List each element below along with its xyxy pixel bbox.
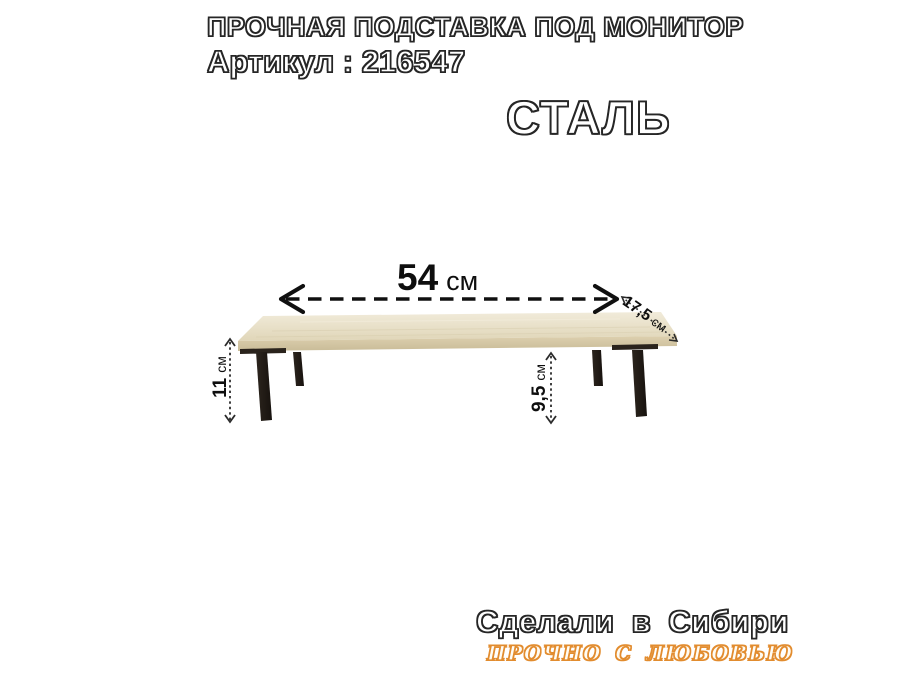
width-unit: см [446,266,478,297]
width-dimension-label: 54 см [397,257,478,299]
height-left-value: 11 [210,378,232,398]
stand-leg-front-right [632,350,647,417]
height-left-unit: см [213,356,229,373]
slogan-text: ПРОЧНО С ЛЮБОВЬЮ [487,641,794,665]
made-in-text: Сделали в Сибири [476,604,789,640]
height-mid-dimension-label: 9,5 см [529,364,551,412]
stand-graphic [238,312,677,421]
height-mid-unit: см [532,364,548,381]
height-mid-value: 9,5 [529,386,551,412]
stand-mount-plate-right [612,344,658,350]
dimension-diagram [0,0,900,675]
stand-leg-back-right [592,350,603,386]
stand-leg-front-left [256,352,272,421]
width-value: 54 [397,257,438,299]
stand-leg-back-left [293,352,304,386]
product-card: ПРОЧНАЯ ПОДСТАВКА ПОД МОНИТОР Артикул : … [0,0,900,675]
height-left-dimension-label: 11 см [210,356,232,398]
